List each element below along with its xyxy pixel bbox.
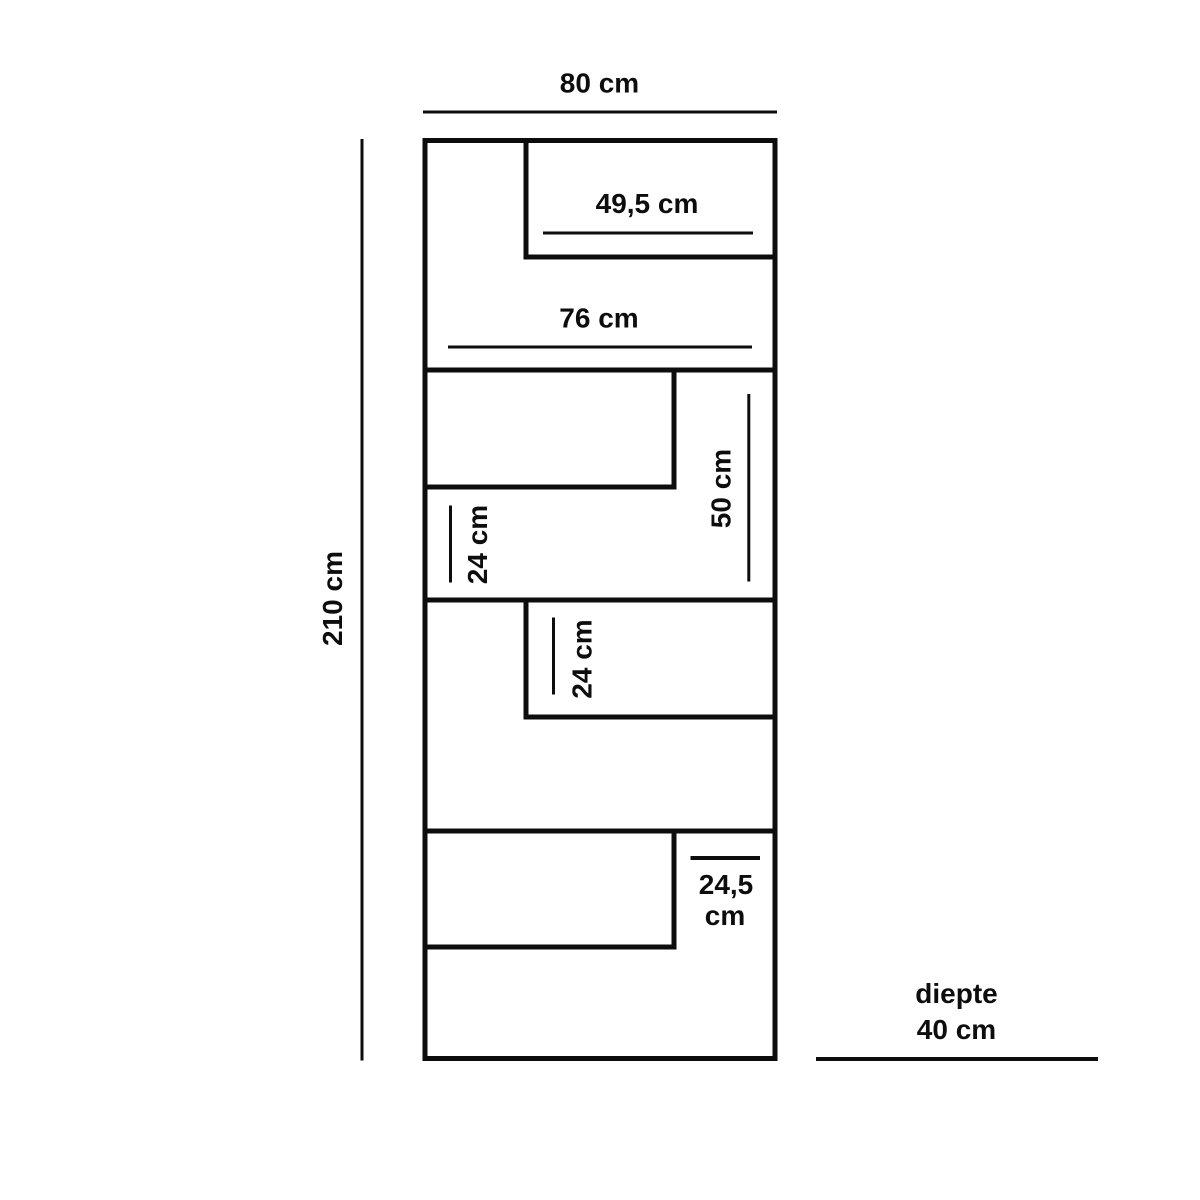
svg-text:24 cm: 24 cm: [462, 505, 493, 584]
svg-text:24,5: 24,5: [699, 869, 754, 900]
svg-text:80 cm: 80 cm: [560, 68, 639, 99]
svg-text:diepte: diepte: [915, 978, 997, 1009]
svg-text:40 cm: 40 cm: [917, 1014, 996, 1045]
svg-text:210 cm: 210 cm: [317, 551, 348, 646]
svg-text:76 cm: 76 cm: [559, 303, 638, 334]
svg-text:49,5 cm: 49,5 cm: [596, 188, 699, 219]
svg-text:cm: cm: [705, 900, 745, 931]
svg-text:50 cm: 50 cm: [706, 449, 737, 528]
svg-text:24 cm: 24 cm: [567, 619, 598, 698]
